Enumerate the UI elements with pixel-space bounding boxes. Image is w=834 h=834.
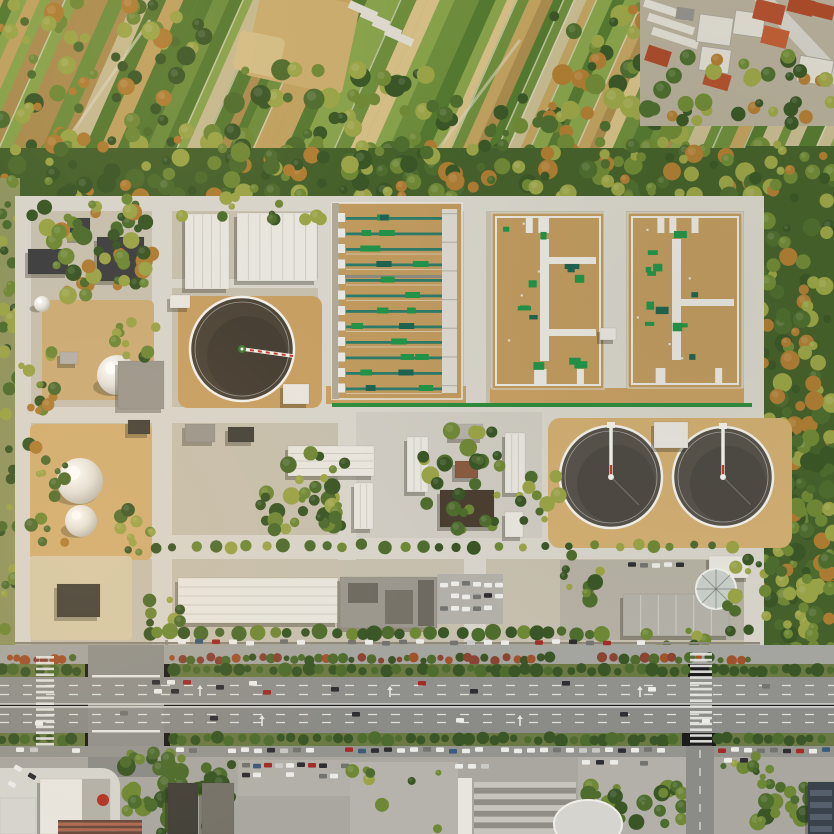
gray-complex-section <box>418 580 434 626</box>
aerial-photo-canvas <box>0 0 834 834</box>
white-wall <box>458 778 472 834</box>
solar-panels <box>810 784 832 832</box>
aerial-photograph <box>0 0 834 834</box>
